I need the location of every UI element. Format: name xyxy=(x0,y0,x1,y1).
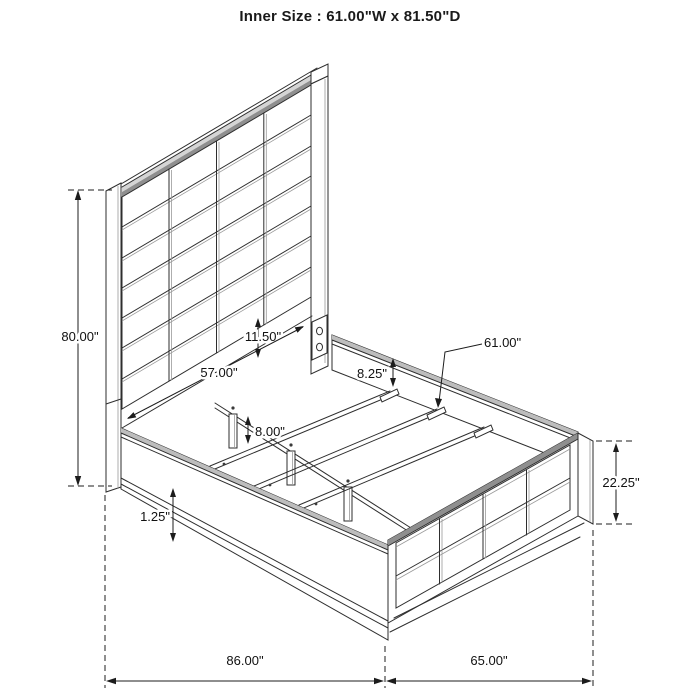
side-rail-right xyxy=(332,335,578,466)
side-rail-left xyxy=(121,428,388,640)
mounting-bracket xyxy=(312,315,327,360)
dim-headboard-height-label: 80.00" xyxy=(61,329,99,344)
diagram-canvas: 80.00" 11.50" 57.00" 8.25" 61.00" xyxy=(0,0,700,700)
support-leg xyxy=(229,414,237,448)
headboard xyxy=(106,64,328,492)
dim-overall-length-label: 86.00" xyxy=(226,653,264,668)
dim-center-leg-height-label: 8.00" xyxy=(255,424,285,439)
dim-side-rail-depth-label: 8.25" xyxy=(357,366,387,381)
dim-footboard-height: 22.25" xyxy=(596,441,640,524)
headboard-left-post xyxy=(106,183,121,492)
dim-headboard-height: 80.00" xyxy=(61,190,112,486)
dim-headboard-base-height-label: 11.50" xyxy=(245,329,282,344)
footboard-right-post xyxy=(578,433,593,524)
dim-base-trim-height-label: 1.25" xyxy=(140,509,170,524)
footboard xyxy=(388,433,593,632)
cross-slat xyxy=(210,389,399,471)
dim-slat-length-label: 61.00" xyxy=(484,335,522,350)
dim-headboard-inner-width-label: 57.00" xyxy=(200,365,238,380)
support-leg xyxy=(344,487,352,521)
dim-footboard-height-label: 22.25" xyxy=(602,475,640,490)
bed-dimension-diagram: Inner Size : 61.00"W x 81.50"D xyxy=(0,0,700,700)
cross-slat xyxy=(254,407,446,491)
dim-overall-width-label: 65.00" xyxy=(470,653,508,668)
support-leg xyxy=(287,451,295,485)
